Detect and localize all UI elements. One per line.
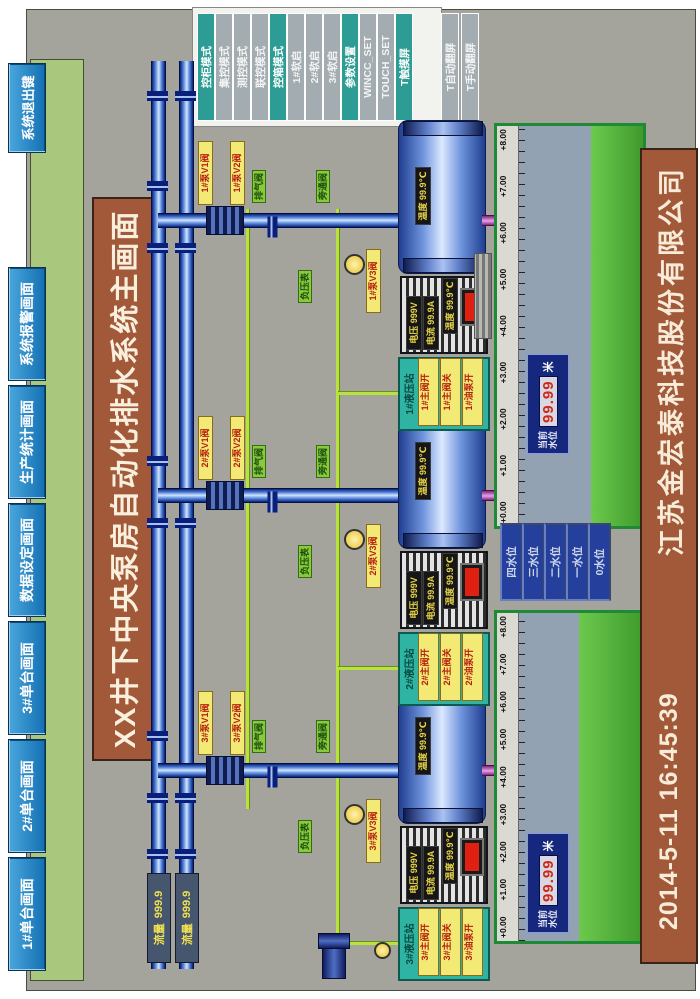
bypass-valve-label: 旁通阀 bbox=[316, 720, 330, 753]
mode-button-cabinet[interactable]: 控柜模式 bbox=[197, 13, 215, 121]
company-name: 江苏金宏泰科技股份有限公司 bbox=[650, 166, 689, 556]
water-level-fill bbox=[579, 613, 643, 941]
level-button-0[interactable]: 0水位 bbox=[588, 523, 611, 601]
vent-valve-label: 排气阀 bbox=[252, 445, 266, 478]
mode-button-auto-page[interactable]: T自动翻屏 bbox=[441, 13, 459, 121]
mode-button-touchscreen[interactable]: T触摸屏 bbox=[395, 13, 413, 121]
vacuum-gauge-label: 负压表 bbox=[298, 270, 312, 303]
water-level-unit: 米 bbox=[540, 840, 556, 851]
valve-label-v3: 2#泵V3阀 bbox=[366, 524, 381, 588]
hydraulic-station: 1#液压站 1#主阀开 1#主阀关 1#油泵开 bbox=[398, 357, 490, 431]
aux-pump-motor bbox=[318, 933, 350, 949]
pipe-flange bbox=[268, 492, 278, 513]
hydraulic-open-button[interactable]: 3#主阀开 bbox=[418, 908, 439, 976]
pipe-flange bbox=[268, 767, 278, 788]
mode-button-box[interactable]: 控箱模式 bbox=[269, 13, 287, 121]
vacuum-gauge-label: 负压表 bbox=[298, 820, 312, 853]
water-level-display: 当前水位 99.99 米 bbox=[527, 354, 569, 454]
mode-button-manual-page[interactable]: T手动翻屏 bbox=[461, 13, 479, 121]
pressure-gauge-icon bbox=[344, 529, 365, 550]
mode-button-measure[interactable]: 测控模式 bbox=[233, 13, 251, 121]
motor-temp-plate: 温度 99.9℃ bbox=[442, 828, 458, 884]
pressure-gauge-icon bbox=[344, 804, 365, 825]
branch-pipe bbox=[158, 763, 410, 778]
hydraulic-close-button[interactable]: 1#主阀关 bbox=[440, 358, 461, 426]
pipe-flange bbox=[175, 91, 196, 101]
motor: 电压 999V 电流 99.9A 温度 99.9℃ bbox=[400, 826, 488, 904]
vacuum-gauge-label: 负压表 bbox=[298, 545, 312, 578]
sump-scale-ticks bbox=[519, 613, 525, 941]
mode-button-param-set[interactable]: 参数设置 bbox=[341, 13, 359, 121]
branch-pipe bbox=[158, 488, 410, 503]
motor-current-plate: 电流 99.9A bbox=[423, 846, 439, 900]
motor-temp-plate: 温度 99.9℃ bbox=[442, 553, 458, 609]
vent-valve-label: 排气阀 bbox=[252, 170, 266, 203]
mode-button-wincc-set[interactable]: WINCC_SET bbox=[359, 13, 377, 121]
mode-button-softstart-3[interactable]: 3#软启 bbox=[323, 13, 341, 121]
mode-button-central[interactable]: 集控模式 bbox=[215, 13, 233, 121]
green-stub bbox=[338, 667, 398, 670]
motor-voltage-plate: 电压 999V bbox=[406, 846, 422, 900]
motor: 电压 999V 电流 99.9A 温度 99.9℃ bbox=[400, 551, 488, 629]
pump-cap bbox=[403, 533, 483, 548]
bypass-valve-label: 旁通阀 bbox=[316, 170, 330, 203]
motor-temp-plate: 温度 99.9℃ bbox=[442, 278, 458, 334]
sump-scale: +0.00+1.00+2.00+3.00+4.00+5.00+6.00+7.00… bbox=[497, 126, 519, 526]
level-button-3[interactable]: 三水位 bbox=[522, 523, 545, 601]
hmi-screen: 1#单台画面 2#单台画面 3#单台画面 数据设定画面 生产统计画面 系统报警画… bbox=[0, 0, 700, 999]
water-level-value: 99.99 bbox=[539, 855, 558, 906]
hydraulic-title: 3#液压站 bbox=[401, 909, 416, 979]
pump-temp-plate: 温度 99.9℃ bbox=[415, 167, 431, 225]
datetime: 2014-5-11 16:45:39 bbox=[655, 692, 684, 930]
sump-scale: +0.00+1.00+2.00+3.00+4.00+5.00+6.00+7.00… bbox=[497, 613, 519, 941]
hydraulic-station: 2#液压站 2#主阀开 2#主阀关 2#油泵开 bbox=[398, 632, 490, 706]
hydraulic-open-button[interactable]: 1#主阀开 bbox=[418, 358, 439, 426]
gate-valve bbox=[206, 481, 244, 510]
valve-label-v1: 1#泵V1阀 bbox=[198, 141, 213, 205]
branch-pipe bbox=[158, 213, 410, 228]
motor-indicator bbox=[462, 840, 482, 874]
gate-valve bbox=[206, 206, 244, 235]
mode-button-linked[interactable]: 联控模式 bbox=[251, 13, 269, 121]
water-sump-left: +0.00+1.00+2.00+3.00+4.00+5.00+6.00+7.00… bbox=[494, 610, 646, 944]
water-level-unit: 米 bbox=[540, 361, 556, 372]
hydraulic-oilpump-button[interactable]: 1#油泵开 bbox=[462, 358, 483, 426]
hydraulic-station: 3#液压站 3#主阀开 3#主阀关 3#油泵开 bbox=[398, 907, 490, 981]
pump: 温度 99.9℃ bbox=[398, 120, 486, 274]
vent-valve-label: 排气阀 bbox=[252, 720, 266, 753]
sump-scale-ticks bbox=[519, 126, 525, 526]
motor-current-plate: 电流 99.9A bbox=[423, 571, 439, 625]
aux-pump bbox=[322, 947, 346, 979]
hydraulic-oilpump-button[interactable]: 2#油泵开 bbox=[462, 633, 483, 701]
valve-label-v3: 1#泵V3阀 bbox=[366, 249, 381, 313]
hydraulic-title: 2#液压站 bbox=[401, 634, 416, 704]
level-button-4[interactable]: 四水位 bbox=[500, 523, 523, 601]
hydraulic-close-button[interactable]: 3#主阀关 bbox=[440, 908, 461, 976]
water-level-display: 当前水位 99.99 米 bbox=[527, 833, 569, 933]
bypass-valve-label: 旁通阀 bbox=[316, 445, 330, 478]
valve-label-v2: 1#泵V2阀 bbox=[230, 141, 245, 205]
mode-button-touch-set[interactable]: TOUCH_SET bbox=[377, 13, 395, 121]
motor-indicator bbox=[462, 565, 482, 599]
footer-bar: 2014-5-11 16:45:39 江苏金宏泰科技股份有限公司 bbox=[640, 148, 698, 964]
pump-temp-plate: 温度 99.9℃ bbox=[415, 717, 431, 775]
aux-gauge-icon bbox=[374, 942, 391, 959]
pump-cap bbox=[403, 121, 483, 136]
gate-valve bbox=[206, 756, 244, 785]
hydraulic-open-button[interactable]: 2#主阀开 bbox=[418, 633, 439, 701]
mode-button-softstart-2[interactable]: 2#软启 bbox=[305, 13, 323, 121]
hydraulic-close-button[interactable]: 2#主阀关 bbox=[440, 633, 461, 701]
pump-temp-plate: 温度 99.9℃ bbox=[415, 442, 431, 500]
motor-voltage-plate: 电压 999V bbox=[406, 296, 422, 350]
pump-cap bbox=[403, 258, 483, 273]
green-stub bbox=[338, 392, 398, 395]
pump-cap bbox=[403, 808, 483, 823]
mode-button-softstart-1[interactable]: 1#软启 bbox=[287, 13, 305, 121]
pressure-gauge-icon bbox=[344, 254, 365, 275]
sump-grating bbox=[474, 253, 492, 339]
water-level-fill bbox=[591, 126, 643, 526]
hydraulic-oilpump-button[interactable]: 3#油泵开 bbox=[462, 908, 483, 976]
pipe-flange bbox=[268, 217, 278, 238]
water-sump-right: +0.00+1.00+2.00+3.00+4.00+5.00+6.00+7.00… bbox=[494, 123, 646, 529]
hydraulic-title: 1#液压站 bbox=[401, 359, 416, 429]
level-button-1[interactable]: 一水位 bbox=[566, 523, 589, 601]
water-level-value: 99.99 bbox=[539, 376, 558, 427]
pipe-flange bbox=[147, 91, 168, 101]
motor-current-plate: 电流 99.9A bbox=[423, 296, 439, 350]
level-button-2[interactable]: 二水位 bbox=[544, 523, 567, 601]
motor-voltage-plate: 电压 999V bbox=[406, 571, 422, 625]
valve-label-v3: 3#泵V3阀 bbox=[366, 799, 381, 863]
